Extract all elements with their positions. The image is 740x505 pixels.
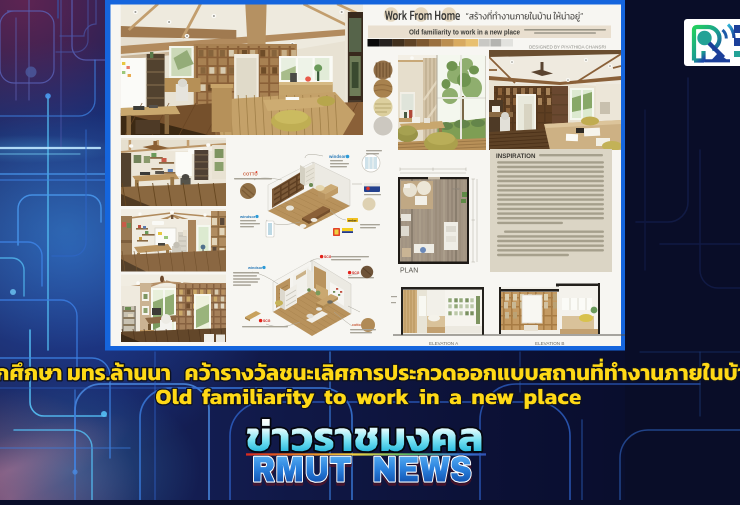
- svg-text:windsor: windsor: [239, 214, 256, 219]
- svg-text:INSPIRATION: INSPIRATION: [496, 153, 536, 160]
- svg-text:cotto: cotto: [352, 323, 362, 327]
- svg-text:ELEVATION A: ELEVATION A: [429, 341, 459, 346]
- svg-text:DESIGNED BY PIYATHIDA CHANSRI: DESIGNED BY PIYATHIDA CHANSRI: [529, 45, 606, 50]
- svg-text:windsor: windsor: [328, 154, 346, 159]
- svg-text:SCG: SCG: [324, 255, 332, 259]
- svg-text:Old familiarity to work in a n: Old familiarity to work in a new place: [409, 29, 520, 36]
- svg-text:SCG: SCG: [352, 271, 360, 275]
- svg-text:weber: weber: [347, 218, 358, 222]
- svg-text:ELEVATION B: ELEVATION B: [535, 341, 564, 346]
- svg-text:SCG: SCG: [263, 319, 271, 323]
- svg-text:windsor: windsor: [247, 266, 263, 270]
- svg-text:mash: mash: [452, 187, 460, 191]
- svg-text:PLAN: PLAN: [400, 268, 418, 275]
